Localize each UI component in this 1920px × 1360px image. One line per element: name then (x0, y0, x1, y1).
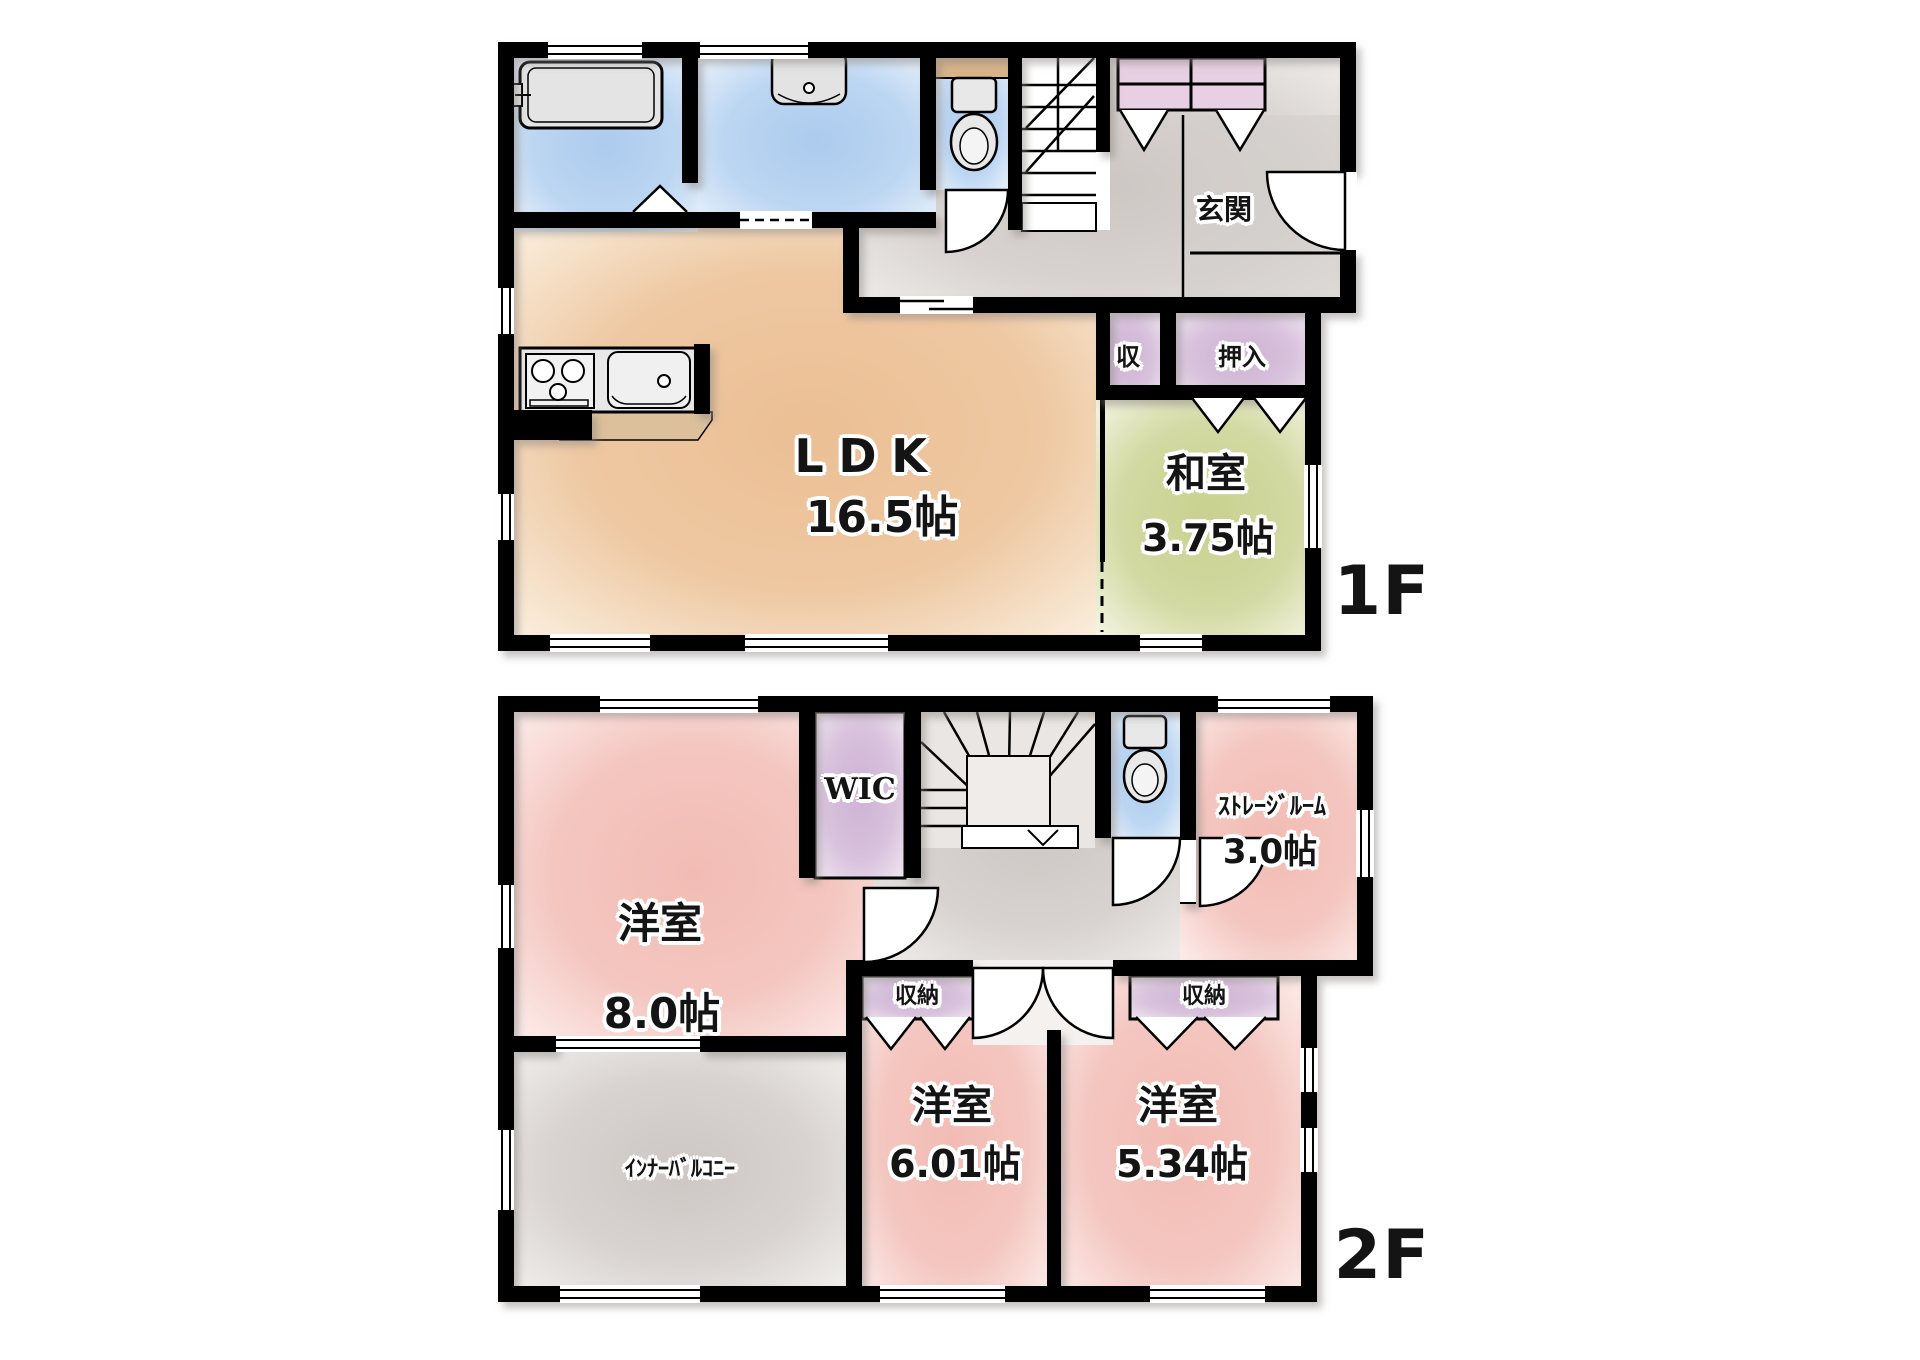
bedroom534-size-label: 5.34帖 (1116, 1145, 1248, 1183)
closet-left-label: 収納 (895, 986, 939, 1008)
bathtub-icon (508, 62, 662, 128)
bedroom534-name-label: 洋室 (1138, 1086, 1218, 1126)
ldk-name-label: LDK (794, 433, 941, 479)
sliding-door-hall (900, 296, 973, 314)
toilet-icon-1f (951, 78, 997, 170)
balcony-label: ｲﾝﾅｰﾊﾞﾙｺﾆｰ (625, 1159, 735, 1181)
bedroom601-size-label: 6.01帖 (889, 1145, 1021, 1183)
floor-plan-page: LDK 16.5帖 和室 3.75帖 玄関 収 押入 1F 洋室 8.0帖 WI… (0, 0, 1920, 1360)
washitsu-size-label: 3.75帖 (1142, 519, 1274, 557)
bedroom601-name-label: 洋室 (912, 1086, 992, 1126)
floor2-title: 2F (1334, 1222, 1431, 1290)
shoe-cabinet (1118, 58, 1265, 110)
storage-name-label: ｽﾄﾚｰｼﾞﾙｰﾑ (1218, 794, 1326, 818)
toilet-icon-2f (1124, 716, 1166, 802)
genkan-label: 玄関 (1196, 196, 1252, 224)
bedroom8-name-label: 洋室 (618, 903, 702, 945)
closet-right-label: 収納 (1182, 986, 1226, 1008)
ldk-size-label: 16.5帖 (806, 496, 959, 540)
oshiire-label: 押入 (1218, 345, 1266, 369)
floor1-title: 1F (1334, 558, 1431, 626)
bedroom8-size-label: 8.0帖 (604, 993, 720, 1035)
kitchen-sink-icon (608, 352, 690, 408)
storage-size-label: 3.0帖 (1223, 835, 1317, 869)
washitsu-name-label: 和室 (1166, 454, 1246, 494)
closet-shu-label: 収 (1116, 345, 1140, 369)
washroom-opening (740, 211, 812, 229)
wic-label: WIC (824, 775, 896, 805)
